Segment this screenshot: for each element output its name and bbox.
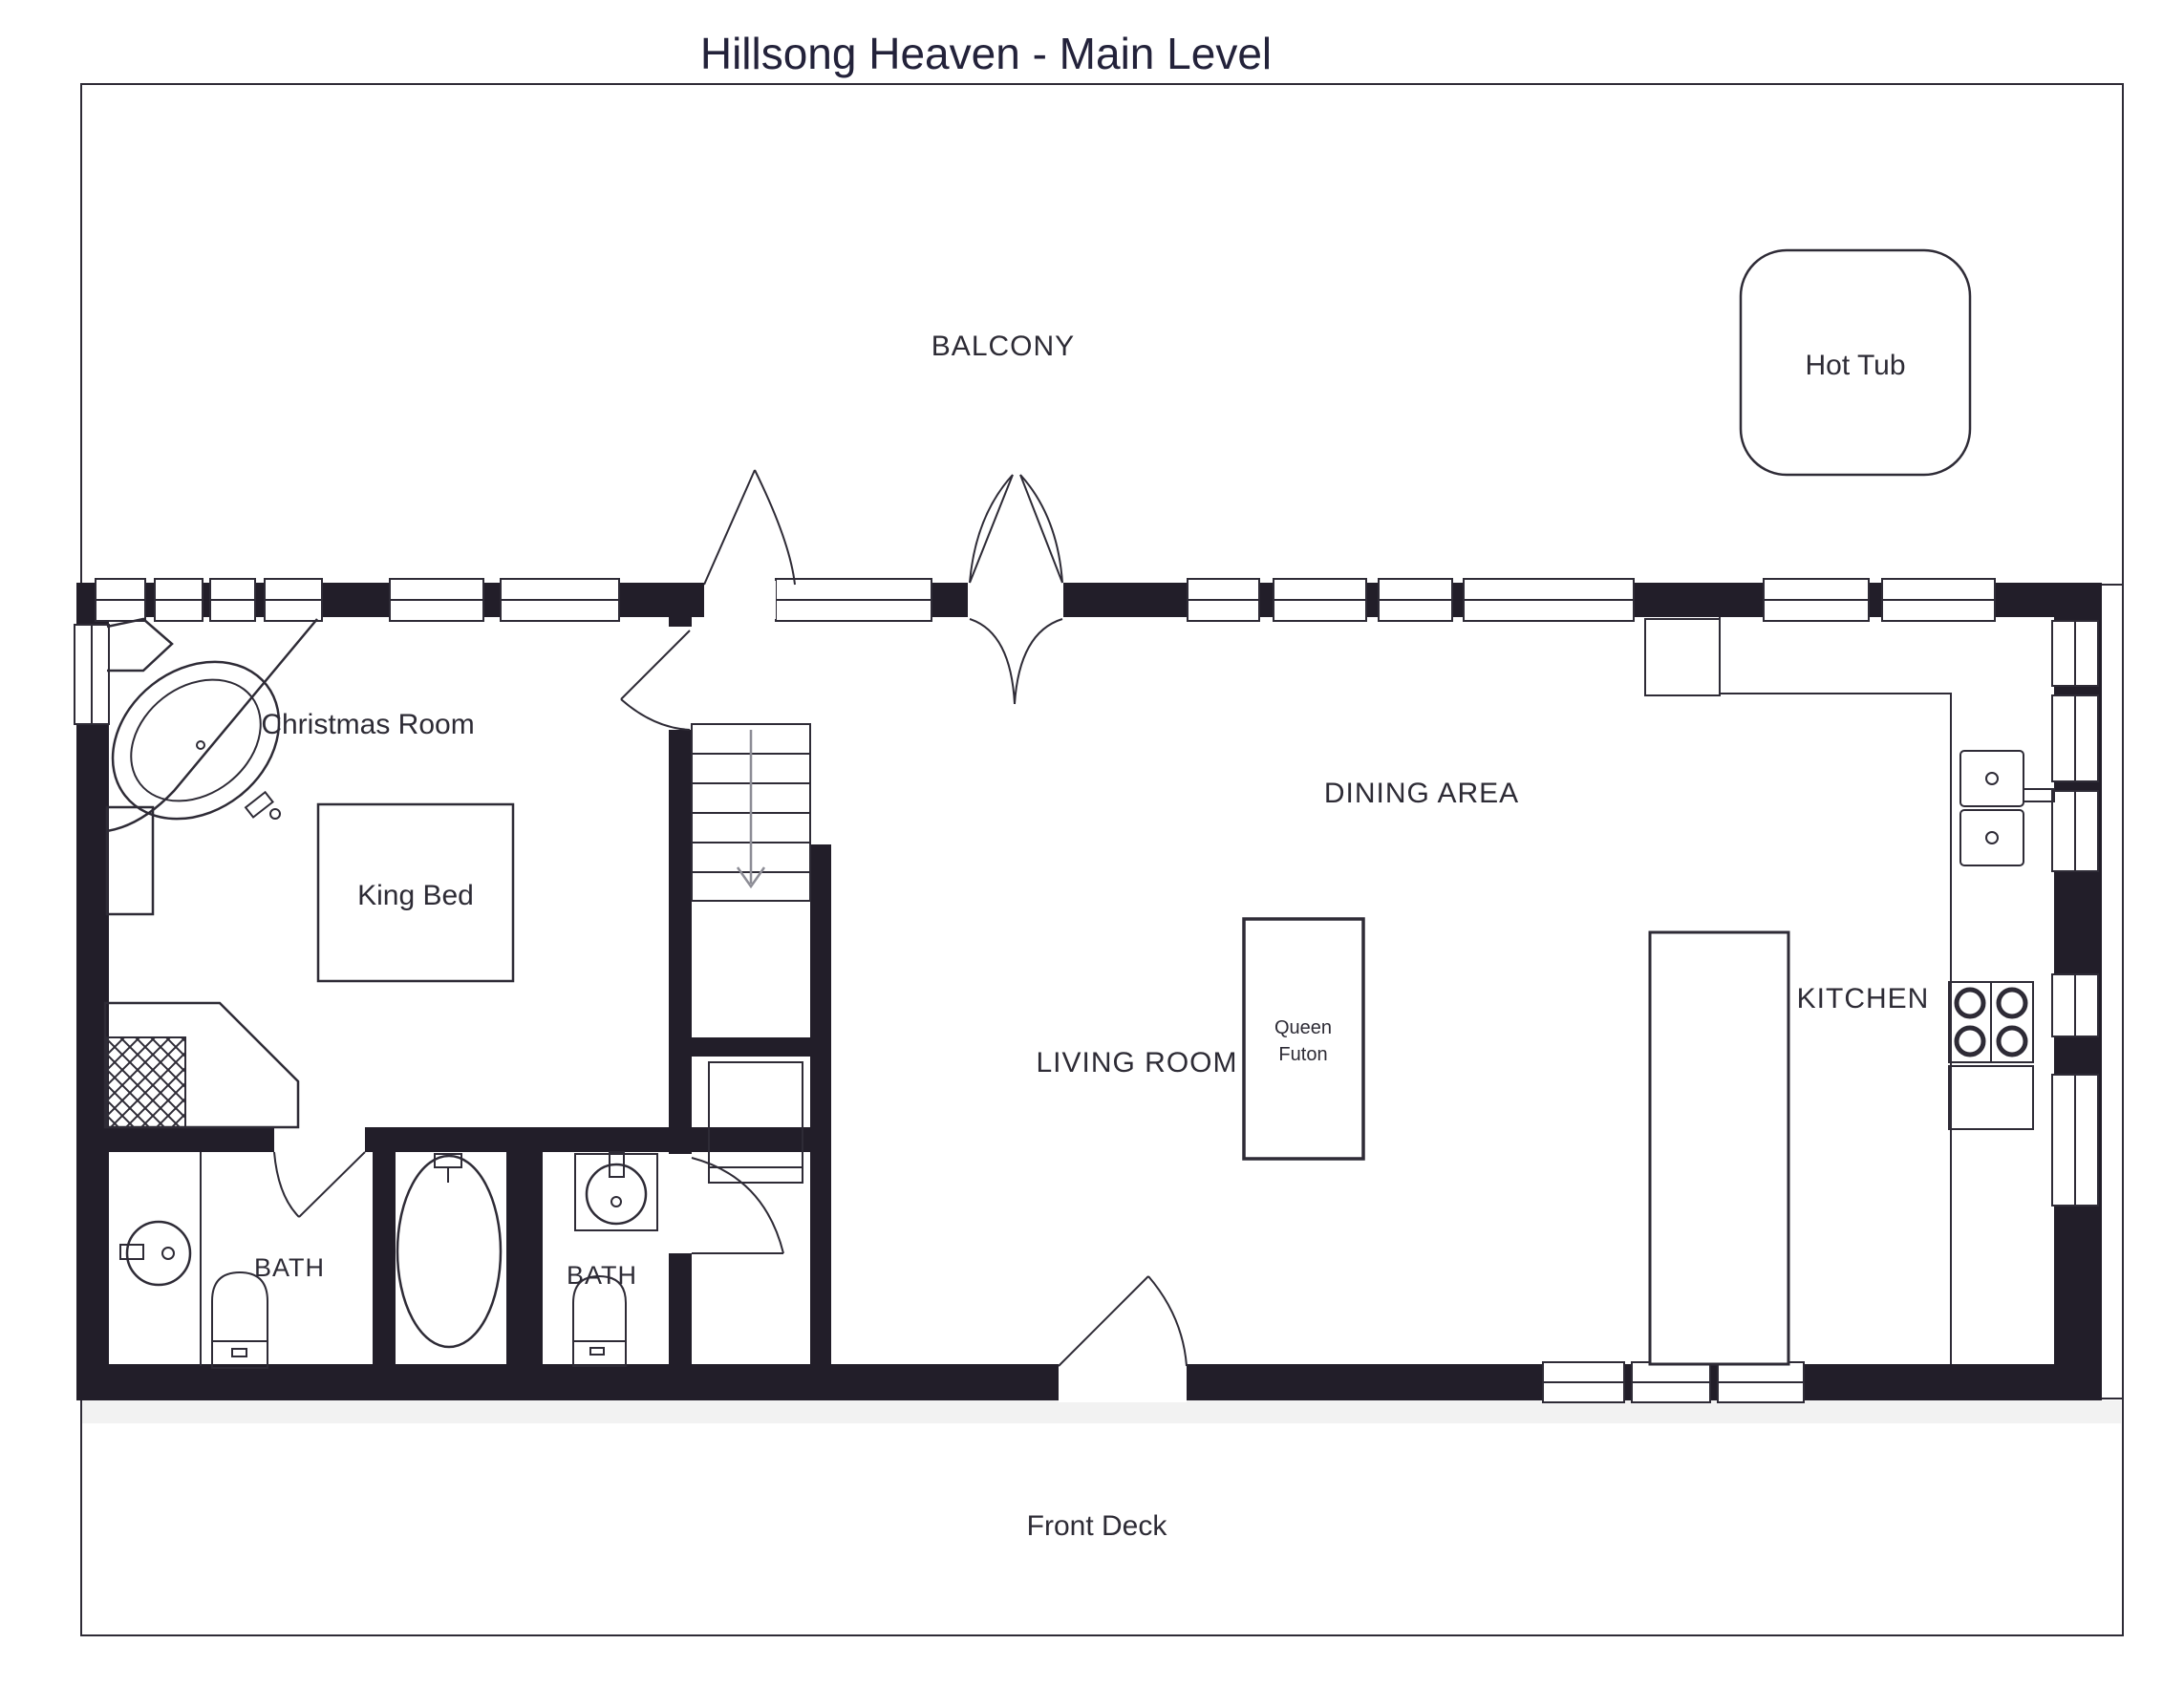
christmas-room-label: Christmas Room bbox=[261, 709, 474, 740]
fireplace-symbol bbox=[105, 1003, 298, 1127]
king-bed-symbol: King Bed bbox=[318, 804, 513, 981]
queen-futon-label-line2: Futon bbox=[1278, 1044, 1327, 1065]
refrigerator-symbol bbox=[1645, 619, 1720, 695]
closet-symbol bbox=[709, 1062, 803, 1183]
toilet-symbol bbox=[212, 1272, 268, 1368]
dishwasher-symbol bbox=[1949, 1066, 2033, 1129]
window-icon bbox=[1543, 1362, 1804, 1402]
staircase-down-symbol bbox=[692, 724, 810, 1183]
bath1-door bbox=[274, 1125, 365, 1217]
hot-tub-symbol: Hot Tub bbox=[1741, 250, 1970, 475]
king-bed-label: King Bed bbox=[357, 880, 474, 911]
interior-wall-landing bbox=[692, 1037, 831, 1057]
bath1-label: BATH bbox=[254, 1253, 325, 1282]
front-door bbox=[1059, 1276, 1187, 1402]
floor-plan-page: Hillsong Heaven - Main Level BALCONY Hot… bbox=[0, 0, 2184, 1687]
bathroom-1: BATH bbox=[120, 1152, 325, 1368]
interior-wall-stair bbox=[810, 844, 831, 1366]
christmas-room: Christmas Room King Bed bbox=[81, 619, 513, 1127]
interior-wall-tub-right bbox=[506, 1152, 543, 1366]
kitchen: KITCHEN bbox=[1645, 617, 2054, 1364]
balcony-area: BALCONY Hot Tub bbox=[81, 84, 2123, 585]
kitchen-island-symbol bbox=[1650, 932, 1788, 1364]
window-icon bbox=[75, 625, 109, 724]
balcony-double-door bbox=[968, 475, 1063, 704]
christmas-room-door bbox=[621, 627, 694, 730]
floor-plan-drawing: Hillsong Heaven - Main Level BALCONY Hot… bbox=[0, 0, 2184, 1687]
bath2-door bbox=[667, 1154, 783, 1253]
front-deck-area: Front Deck bbox=[81, 1399, 2123, 1635]
page-title: Hillsong Heaven - Main Level bbox=[700, 29, 1272, 78]
balcony-label: BALCONY bbox=[931, 331, 1075, 362]
deck-shading bbox=[82, 1400, 2121, 1423]
dining-area-label: DINING AREA bbox=[1324, 778, 1519, 809]
queen-futon-label-line1: Queen bbox=[1274, 1017, 1332, 1038]
queen-futon-symbol: Queen Futon bbox=[1244, 919, 1363, 1159]
bathtub-symbol bbox=[397, 1154, 501, 1347]
interior-wall-tub-left bbox=[373, 1152, 396, 1366]
kitchen-sink-symbol bbox=[1960, 751, 2054, 865]
hot-tub-label: Hot Tub bbox=[1805, 350, 1905, 381]
living-room-label: LIVING ROOM bbox=[1036, 1047, 1237, 1078]
balcony-railing bbox=[81, 84, 2123, 585]
stove-symbol bbox=[1949, 982, 2033, 1062]
interior-wall-bath bbox=[107, 1127, 831, 1152]
bathroom-sink-symbol bbox=[120, 1222, 190, 1285]
front-deck-label: Front Deck bbox=[1027, 1510, 1168, 1542]
bathroom-sink-symbol bbox=[575, 1152, 657, 1230]
toilet-symbol bbox=[573, 1276, 626, 1366]
bathroom-2: BATH bbox=[567, 1152, 657, 1366]
kitchen-label: KITCHEN bbox=[1797, 983, 1930, 1014]
